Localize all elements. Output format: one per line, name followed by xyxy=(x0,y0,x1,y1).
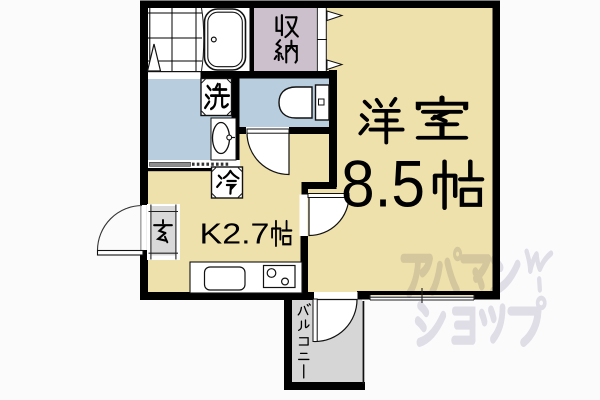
svg-text:8.5: 8.5 xyxy=(341,147,425,221)
svg-text:K2.7: K2.7 xyxy=(200,219,270,251)
